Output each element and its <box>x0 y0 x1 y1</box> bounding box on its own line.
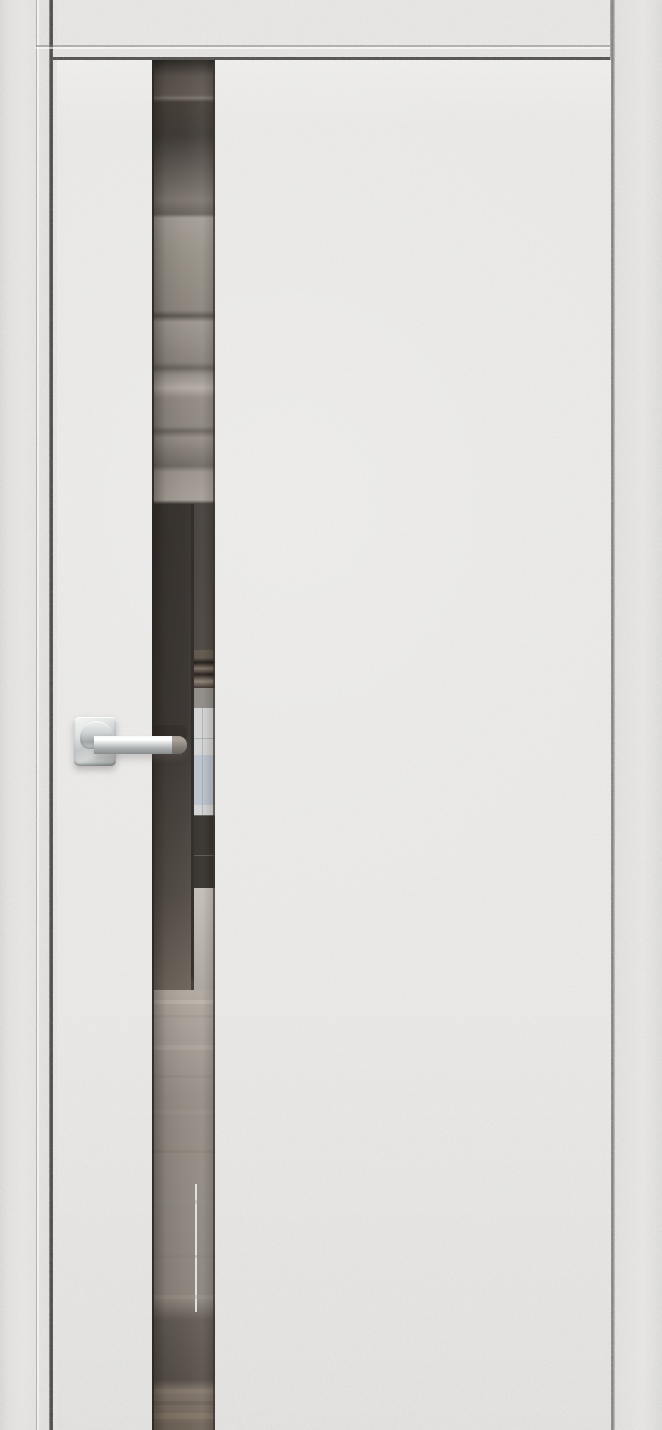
door-product-photo <box>0 0 662 1430</box>
photo-vignette <box>0 0 662 1430</box>
